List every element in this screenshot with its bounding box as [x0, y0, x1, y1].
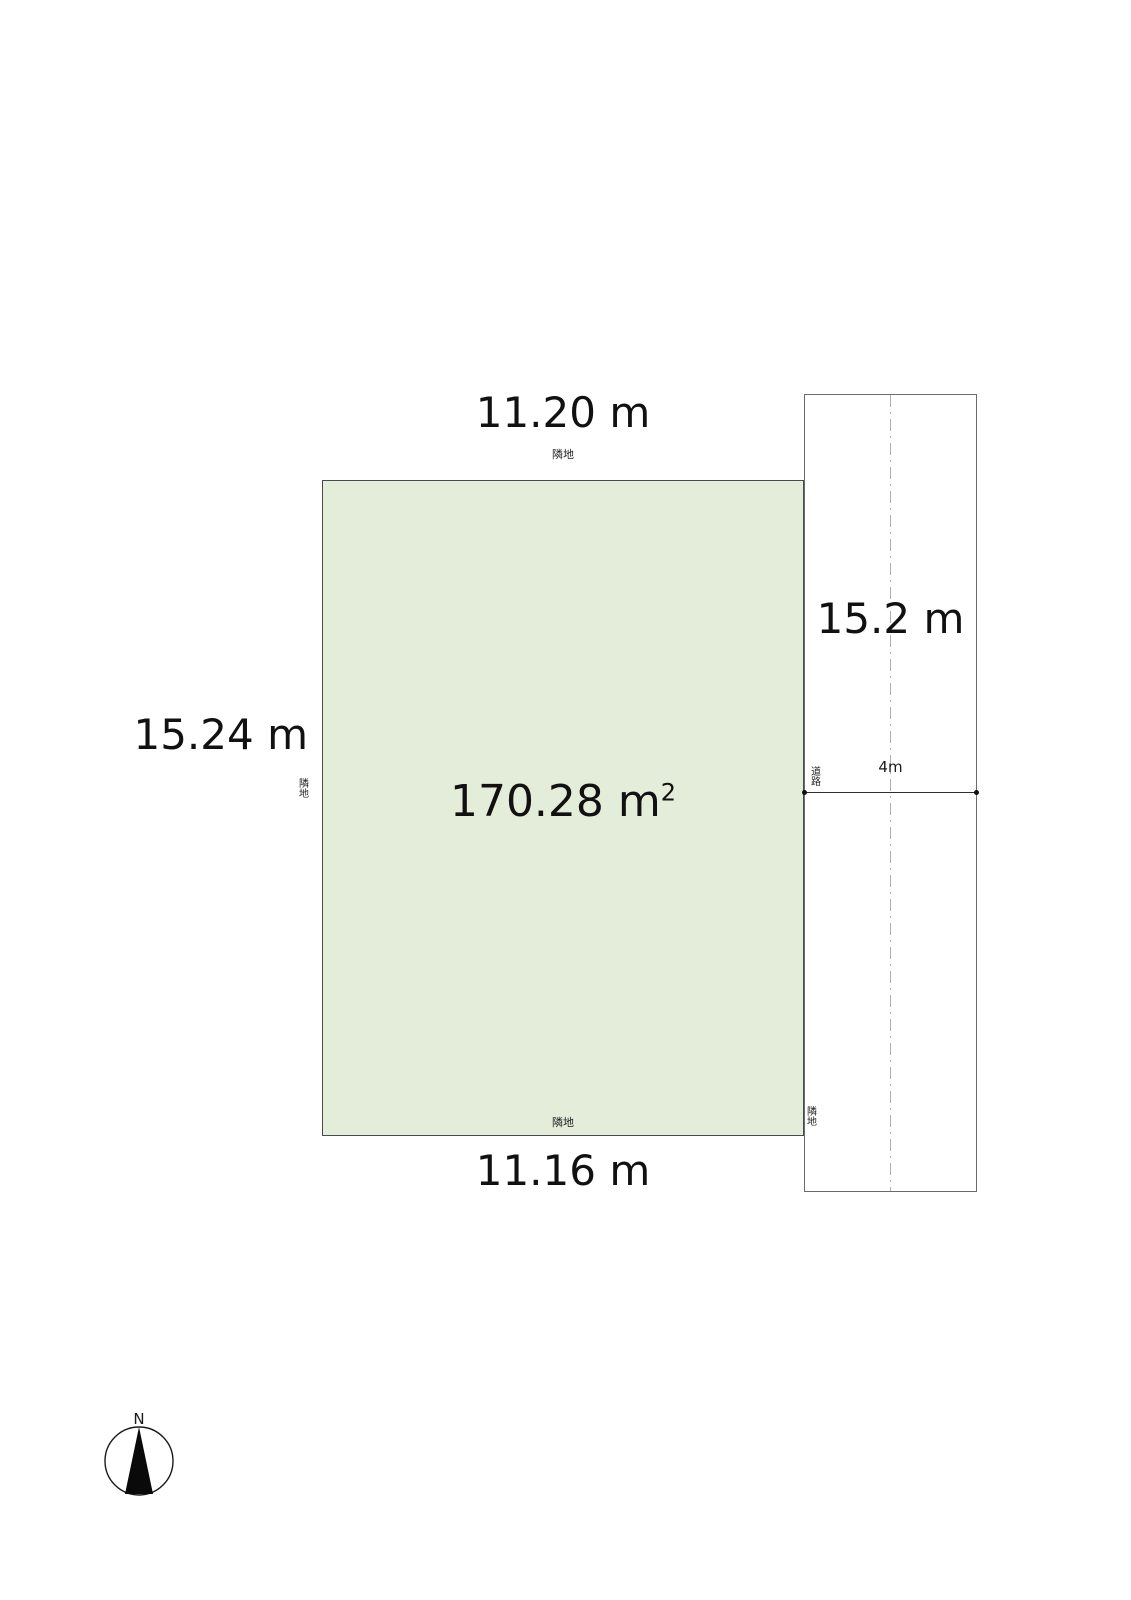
road-length-label: 15.2 m — [804, 596, 977, 642]
road-width-label: 4m — [804, 758, 977, 776]
dimension-left-label: 15.24 m — [58, 712, 308, 758]
road-width-dimension-line — [804, 792, 977, 793]
dimension-endpoint-dot — [802, 790, 807, 795]
adjacent-bottom-label: 隣地 — [322, 1117, 804, 1129]
dimension-endpoint-dot — [974, 790, 979, 795]
road-centerline — [890, 395, 891, 1191]
road-southwest-adjacent-label: 隣地 — [804, 1106, 815, 1126]
north-label: N — [133, 1410, 144, 1428]
road-name-label: 道路 — [808, 766, 819, 786]
dimension-top-label: 11.20 m — [322, 390, 804, 436]
adjacent-top-label: 隣地 — [322, 449, 804, 461]
dimension-bottom-label: 11.16 m — [322, 1148, 804, 1194]
plot-area-label: 170.28 m2 — [322, 776, 804, 827]
plot-area-exponent: 2 — [661, 778, 676, 806]
north-arrow-icon — [125, 1427, 153, 1494]
compass: N — [96, 1398, 184, 1506]
road-strip — [804, 394, 977, 1192]
adjacent-left-label: 隣地 — [296, 778, 307, 798]
site-plan-canvas: 11.20 m 隣地 15.24 m 隣地 170.28 m2 隣地 11.16… — [0, 0, 1131, 1600]
plot-area-value: 170.28 m — [450, 776, 661, 827]
